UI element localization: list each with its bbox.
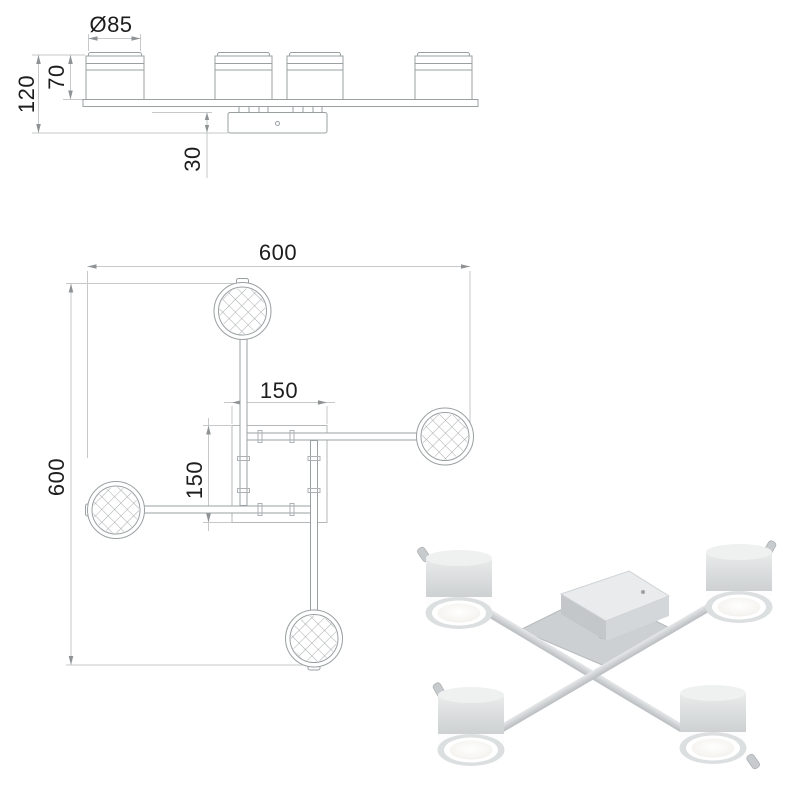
dim-label-total-height: 120 xyxy=(14,75,40,113)
plan-view-dimension-lines xyxy=(66,267,470,666)
arm-bottom xyxy=(311,441,318,613)
lamp-head-profiles xyxy=(86,53,472,100)
mounting-bar-profile xyxy=(83,100,478,107)
canopy-connector-ticks xyxy=(239,107,322,113)
arm-clips xyxy=(238,431,321,516)
lamp-head-plan-top xyxy=(214,283,271,340)
product-photo xyxy=(415,535,795,785)
canopy-profile xyxy=(228,113,327,134)
dim-label-canopy-width: 150 xyxy=(260,378,298,404)
lamp-head-plan-right xyxy=(417,408,474,465)
photo-lamp-head-top-right xyxy=(706,544,773,623)
photo-lamp-head-bottom-right xyxy=(680,685,747,764)
arm-right xyxy=(247,433,418,440)
photo-pivot-pin-bottom-right xyxy=(746,753,761,770)
lamp-head-profile-1 xyxy=(86,53,144,100)
dim-label-head-height: 70 xyxy=(44,64,70,89)
dim-label-overall-height: 600 xyxy=(44,458,70,496)
photo-lamp-head-top-left xyxy=(426,550,493,629)
drawing-canvas: Ø85 70 120 30 600 600 150 150 xyxy=(0,0,800,800)
plan-view xyxy=(66,264,474,670)
dim-label-canopy-depth: 150 xyxy=(182,461,208,499)
lamp-head-plan-bottom xyxy=(286,610,343,667)
dim-label-overall-width: 600 xyxy=(259,240,297,266)
arm-left xyxy=(142,506,311,513)
lamp-head-profile-4 xyxy=(415,53,472,100)
dim-label-diameter: Ø85 xyxy=(89,12,132,38)
lamp-head-profile-2 xyxy=(215,53,272,100)
dim-label-canopy-height: 30 xyxy=(180,146,206,171)
lamp-head-profile-3 xyxy=(287,53,343,100)
plan-view-dimension-arrows xyxy=(69,264,470,665)
lamp-head-plan-left xyxy=(88,482,145,539)
arm-top xyxy=(240,335,247,506)
side-view xyxy=(32,34,478,178)
photo-lamp-head-bottom-left xyxy=(438,687,505,766)
